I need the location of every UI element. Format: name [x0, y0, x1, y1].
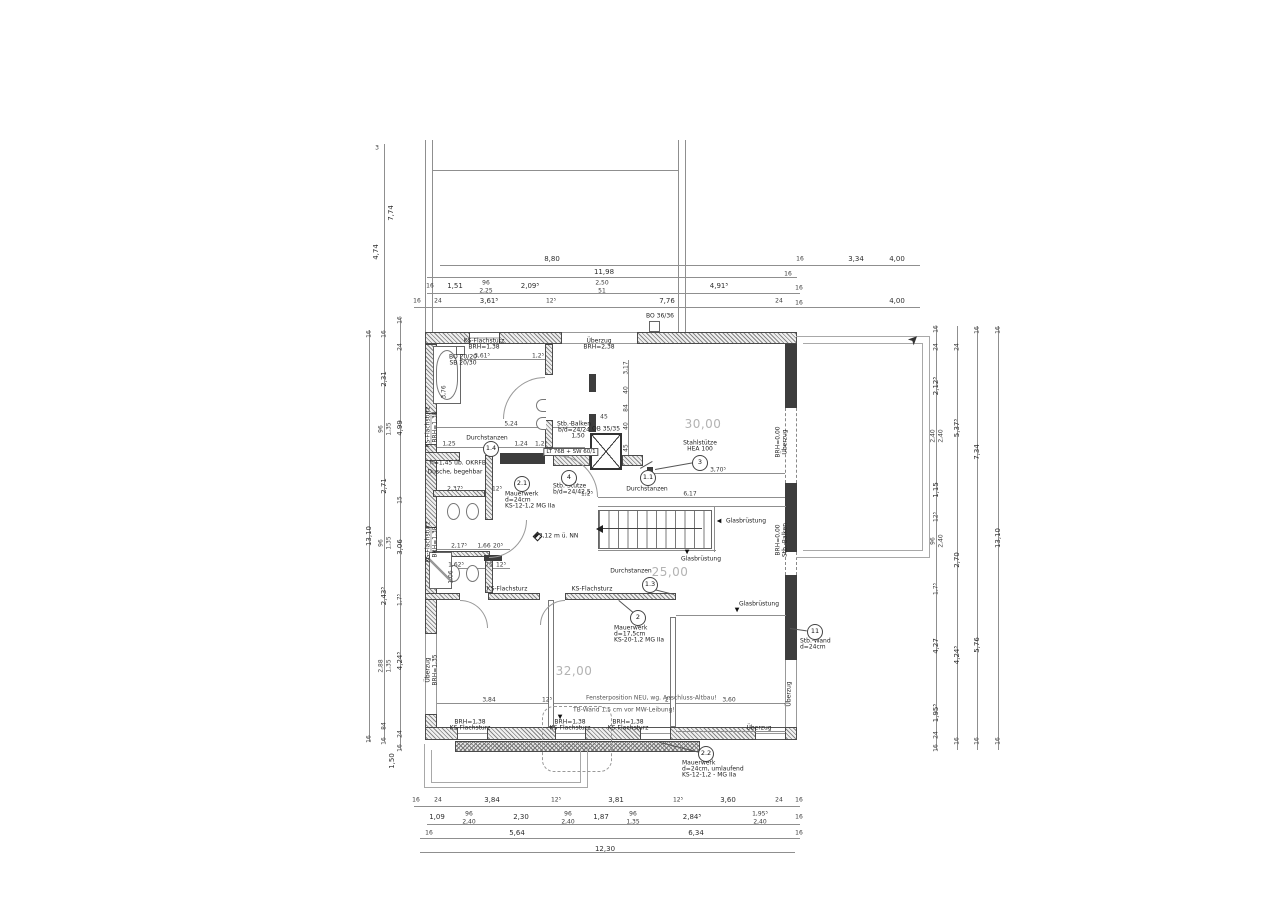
dim-line [384, 144, 385, 742]
position-callout: 4 [561, 470, 577, 486]
dimension-label: 16 [381, 330, 388, 338]
dimension-label: 40 [623, 386, 630, 394]
position-callout: 2 [630, 610, 646, 626]
text-label: Durchstanzen [626, 486, 667, 493]
dimension-label: 4,91⁵ [710, 282, 728, 290]
dimension-label: 16 [795, 797, 803, 804]
dimension-label: 16 [954, 737, 961, 745]
dimension-label: 1,35 [386, 422, 393, 435]
position-callout: 2.1 [514, 476, 530, 492]
dimension-label: 1,35 [386, 536, 393, 549]
dimension-label: 1,7⁵ [397, 594, 404, 606]
dimension-label: 2,12⁵ [932, 377, 940, 395]
position-callout: 1.1 [640, 470, 656, 486]
dimension-label: 7,74 [387, 205, 395, 221]
position-callout: 1.3 [642, 577, 658, 593]
glass-railing-line [598, 506, 786, 507]
exterior-wall-segment [785, 727, 797, 740]
dimension-label: 3,61⁵ [480, 297, 498, 305]
existing-wall-line [432, 170, 679, 171]
dimension-label: 2,40 [462, 819, 475, 826]
room-area-label: 30,00 [685, 417, 722, 431]
dimension-label: 96 [378, 539, 385, 547]
dimension-label: 5,24 [504, 421, 517, 428]
dimension-label: 84 [623, 404, 630, 412]
dimension-label: 1,95⁵ [932, 704, 940, 722]
dimension-label: 7,34 [973, 444, 981, 460]
dimension-label: 12,30 [595, 845, 615, 853]
dimension-label: 96 [482, 280, 490, 287]
dimension-label: 2,50 [595, 280, 608, 287]
door-arc [540, 600, 565, 625]
dimension-label: 75 [485, 562, 493, 569]
text-label: Glasbrüstung [726, 518, 766, 525]
interior-wall [425, 593, 460, 600]
dim-line [400, 318, 401, 750]
dimension-label: 3,34 [848, 255, 864, 263]
text-label: Glasbrüstung [681, 556, 721, 563]
text-label: +3,12 m ü. NN [534, 533, 579, 540]
dimension-label: 3,84 [484, 796, 500, 804]
dimension-label: 3,60 [722, 697, 735, 704]
text-label: d=24cm [800, 644, 826, 651]
wall-pier [589, 374, 596, 392]
text-label: ▼ [685, 549, 690, 556]
floor-plan-canvas: 8,803,34164,0011,9816161,51962,252,09⁵2,… [0, 0, 1280, 905]
text-label: Durchstanzen [610, 568, 651, 575]
dimension-label: 13,10 [365, 526, 373, 546]
dimension-label: 4,24⁵ [953, 646, 961, 664]
text-label: Stb.-Balken [782, 523, 789, 557]
dimension-label: 24 [397, 343, 404, 351]
dimension-label: 1,7⁵ [933, 583, 940, 595]
dimension-label: 16 [397, 744, 404, 752]
text-label: BRH=0,00 [775, 426, 782, 457]
dimension-label: 16 [366, 330, 373, 338]
dimension-label: 5,76 [973, 637, 981, 653]
dimension-label: 24 [434, 298, 442, 305]
text-label: b/d=24/42,5 [553, 489, 591, 496]
dimension-label: 1,95⁵ [752, 811, 768, 818]
dimension-label: 7,76 [659, 297, 675, 305]
dimension-label: 2,17⁵ [451, 543, 467, 550]
text-label: TB-Wand 1,5 cm vor MW-Leibung! [573, 707, 675, 714]
dim-line [957, 326, 958, 750]
dimension-label: 2,84⁵ [683, 813, 701, 821]
dimension-label: 16 [425, 830, 433, 837]
text-label: ◀ [717, 518, 722, 525]
dimension-label: 16 [381, 737, 388, 745]
dimension-label: 8,80 [544, 255, 560, 263]
position-callout: 1.4 [483, 441, 499, 457]
dimension-label: 2,70 [953, 552, 961, 568]
leader-line [655, 462, 693, 470]
dimension-label: 51 [598, 288, 606, 295]
dimension-label: 12⁵ [933, 512, 940, 522]
dimension-label: 1,25 [442, 441, 455, 448]
text-label: Glasbrüstung [739, 601, 779, 608]
dimension-label: 2,71 [380, 478, 388, 494]
text-label: BO 36/36 [646, 313, 674, 320]
dimension-label: 3,81 [608, 796, 624, 804]
dimension-label: 6,34 [688, 829, 704, 837]
dimension-label: 2,40 [930, 429, 937, 442]
stair-direction-arrow [596, 525, 603, 533]
dimension-label: 2,40 [753, 819, 766, 826]
interior-wall [488, 593, 540, 600]
dimension-label: 3,70⁵ [710, 467, 726, 474]
dimension-label: 24 [775, 298, 783, 305]
door-arc [503, 377, 545, 419]
dimension-label: 2,40 [938, 534, 945, 547]
toilet [466, 503, 479, 520]
dimension-label: 3,76 [441, 385, 448, 398]
terrace-outline [803, 343, 923, 551]
concrete-beam [500, 453, 545, 464]
dimension-label: 2,31 [380, 371, 388, 387]
dimension-label: 16 [784, 271, 792, 278]
dimension-label: 96 [930, 537, 937, 545]
toilet [447, 503, 460, 520]
dimension-label: 4,74 [372, 244, 380, 260]
glass-railing-line [676, 615, 786, 616]
revision-cloud [542, 706, 612, 772]
dimension-label: 3,60 [720, 796, 736, 804]
dimension-label: 3,17 [623, 361, 630, 374]
dimension-label: 24 [775, 797, 783, 804]
dimension-label: 24 [434, 797, 442, 804]
existing-wall-line [432, 140, 433, 332]
dimension-label: 2,43⁵ [380, 587, 388, 605]
existing-wall-line [685, 140, 686, 332]
dimension-label: 1,09 [429, 813, 445, 821]
dimension-label: 16 [795, 300, 803, 307]
dimension-label: 11,98 [594, 268, 614, 276]
dimension-label: 16 [933, 744, 940, 752]
dimension-label: 96 [629, 811, 637, 818]
text-label: BRH=1,38 [432, 526, 439, 557]
dim-line [977, 326, 978, 750]
text-label: KS-12-1,2 MG IIa [505, 503, 555, 510]
existing-wall-line [425, 140, 426, 332]
text-label: SB 20/30 [449, 360, 476, 367]
glass-railing-line [598, 550, 716, 551]
door-arc [460, 600, 488, 628]
concrete-wall-segment [785, 575, 797, 660]
interior-wall [545, 344, 553, 375]
dimension-label: 2,40 [561, 819, 574, 826]
dimension-label: 96 [378, 425, 385, 433]
text-label: BRH=1,35 [432, 654, 439, 685]
dimension-label: 1,87 [593, 813, 609, 821]
text-label: KS-Flachsturz [425, 522, 432, 563]
text-label: BRH=0,00 [775, 524, 782, 555]
dimension-label: 12⁵ [551, 797, 561, 804]
exterior-wall-segment [670, 727, 756, 740]
dimension-label: 16 [995, 326, 1002, 334]
interior-wall [622, 455, 643, 466]
dimension-label: 3,06 [396, 539, 404, 555]
dimension-label: 24 [954, 343, 961, 351]
dimension-label: 6,17 [683, 491, 696, 498]
dimension-label: 16 [995, 737, 1002, 745]
dimension-label: 16 [796, 256, 804, 263]
text-label: ▼ [558, 714, 563, 721]
dim-line [427, 824, 800, 825]
text-label: BRH=1,38 [468, 344, 499, 351]
dimension-label: 24 [933, 343, 940, 351]
dimension-label: 15 [397, 496, 404, 504]
dimension-label: 12⁵ [542, 697, 552, 704]
dimension-label: 1,06 [448, 570, 455, 583]
dimension-label: 16 [366, 735, 373, 743]
toilet [466, 565, 479, 582]
dimension-label: 2,30 [513, 813, 529, 821]
dimension-label: 2,25 [479, 288, 492, 295]
dimension-label: 16 [933, 325, 940, 333]
dimension-label: 16 [397, 316, 404, 324]
dimension-label: 96 [564, 811, 572, 818]
text-label: ▼ [735, 607, 740, 614]
dimension-label: 5,37⁵ [953, 419, 961, 437]
dimension-label: 12⁵ [492, 486, 502, 493]
dimension-label: 1,66 [477, 543, 490, 550]
text-label: OB 35/35 [592, 426, 620, 433]
existing-wall-line [678, 140, 679, 332]
text-label: h=1,45 üb. OKRFB [430, 460, 486, 467]
dimension-label: 45 [623, 444, 630, 452]
dimension-label: 16 [974, 326, 981, 334]
dimension-label: 24 [397, 730, 404, 738]
dimension-label: 16 [974, 737, 981, 745]
glass-railing-line [714, 506, 715, 552]
exterior-wall-segment [499, 332, 562, 344]
column-detail-box [649, 321, 660, 332]
text-label: KS-Flachsturz [608, 725, 649, 732]
text-label: Fensterposition NEU, wg. Anschluss-Altba… [586, 695, 717, 702]
dimension-label: 1,24 [514, 441, 527, 448]
text-label: KS-Flachsturz [572, 586, 613, 593]
text-label: Überzug [786, 681, 793, 706]
dimension-label: 2,88 [378, 659, 385, 672]
dimension-label: 1,2⁵ [535, 441, 547, 448]
dimension-label: 13,10 [994, 528, 1002, 548]
text-label: BRH=1,38 [432, 411, 439, 442]
dimension-label: 4,00 [889, 255, 905, 263]
dimension-label: 84 [381, 722, 388, 730]
dimension-label: 12⁵ [673, 797, 683, 804]
dimension-label: 1,50 [388, 753, 396, 769]
dimension-label: 16 [795, 814, 803, 821]
dimension-label: 1,2⁵ [532, 353, 544, 360]
dimension-label: 1,35 [626, 819, 639, 826]
text-label: KS-Flachsturz [487, 586, 528, 593]
interior-wall [565, 593, 676, 600]
text-label: BRH=2,38 [583, 344, 614, 351]
text-label: 1,50 [571, 433, 584, 440]
text-label: Überzug [425, 657, 432, 682]
dimension-label: 24 [933, 731, 940, 739]
staircase [598, 510, 712, 549]
text-label: Dusche, begehbar [428, 469, 483, 476]
dimension-label: 4,99 [396, 420, 404, 436]
text-label: Überzug [746, 725, 771, 732]
dim-line [420, 838, 800, 839]
dimension-label: 16 [795, 830, 803, 837]
dimension-label: 1,15 [932, 482, 940, 498]
position-callout: 11 [807, 624, 823, 640]
dimension-label: 40 [623, 422, 630, 430]
dimension-label: 4,00 [889, 297, 905, 305]
dimension-label: 45 [600, 414, 608, 421]
dimension-label: 1,62⁵ [448, 562, 464, 569]
dimension-label: 1,35 [386, 659, 393, 672]
text-label: KS-Flachsturz [425, 407, 432, 448]
dimension-label: 1,51 [447, 282, 463, 290]
door-arc [489, 520, 527, 558]
text-label: KS-12-1,2 - MG IIa [682, 772, 736, 779]
dimension-label: 4,24⁵ [396, 652, 404, 670]
text-label: Überzug [782, 429, 789, 454]
dimension-label: 3 [375, 145, 379, 152]
dimension-label: 96 [465, 811, 473, 818]
dimension-label: 20⁵ [493, 543, 503, 550]
text-label: Durchstanzen [466, 435, 507, 442]
text-label: KS-20-1,2 MG IIa [614, 637, 664, 644]
dimension-label: 3,84 [482, 697, 495, 704]
room-area-label: 25,00 [652, 565, 689, 579]
dimension-label: 2,40 [938, 429, 945, 442]
dimension-label: 12⁵ [496, 562, 506, 569]
dimension-label: 4,27 [932, 638, 940, 654]
dimension-label: 2,09⁵ [521, 282, 539, 290]
dimension-label: 5,64 [509, 829, 525, 837]
room-area-label: 32,00 [556, 664, 593, 678]
stair-direction-line [602, 528, 702, 529]
dimension-label: 2,37⁵ [447, 486, 463, 493]
text-label: LT 76B + SW 60/1 [543, 448, 598, 456]
exterior-wall-segment [637, 332, 797, 344]
dimension-label: 16 [412, 797, 420, 804]
position-callout: 2.2 [698, 746, 714, 762]
dimension-label: 16 [795, 285, 803, 292]
dim-line [414, 806, 800, 807]
dim-line [414, 307, 920, 308]
dim-line [440, 265, 920, 266]
dimension-label: 12⁵ [546, 298, 556, 305]
dimension-label: 16 [426, 283, 434, 290]
position-callout: 3 [692, 455, 708, 471]
text-label: KS-Flachsturz [550, 725, 591, 732]
dimension-label: 16 [413, 298, 421, 305]
text-label: HEA 100 [687, 446, 713, 453]
text-label: KS-Flachsturz [450, 725, 491, 732]
dim-line [427, 277, 797, 278]
